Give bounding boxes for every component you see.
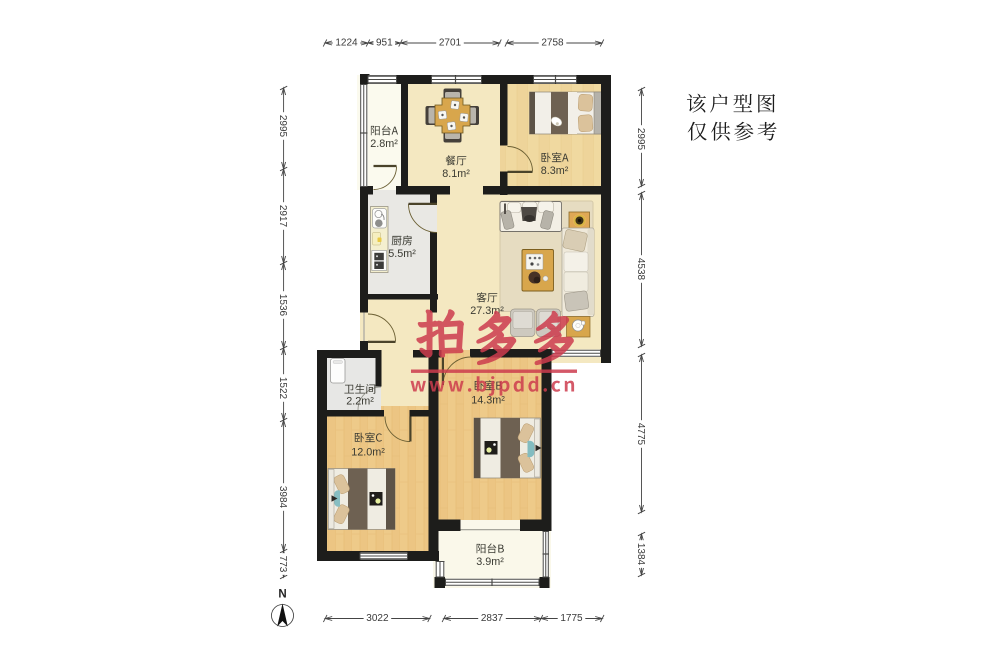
svg-text:14.3m²: 14.3m²: [471, 395, 505, 407]
svg-text:8.1m²: 8.1m²: [442, 168, 470, 180]
svg-text:2.2m²: 2.2m²: [346, 396, 374, 408]
svg-text:1536: 1536: [277, 294, 288, 317]
svg-text:951: 951: [376, 38, 393, 49]
svg-text:1522: 1522: [277, 377, 288, 400]
svg-text:773: 773: [277, 556, 288, 573]
svg-text:2701: 2701: [439, 38, 462, 49]
svg-text:3984: 3984: [277, 486, 288, 509]
svg-text:4538: 4538: [635, 258, 646, 281]
svg-text:3022: 3022: [366, 613, 389, 624]
svg-text:2995: 2995: [277, 115, 288, 138]
svg-text:4775: 4775: [635, 423, 646, 446]
svg-text:3.9m²: 3.9m²: [476, 556, 504, 568]
svg-text:2837: 2837: [481, 613, 504, 624]
svg-text:5.5m²: 5.5m²: [388, 248, 416, 260]
svg-text:1775: 1775: [560, 613, 583, 624]
svg-text:1384: 1384: [635, 543, 646, 566]
svg-text:1224: 1224: [335, 38, 358, 49]
svg-text:2995: 2995: [635, 128, 646, 151]
svg-text:2917: 2917: [277, 205, 288, 228]
svg-text:8.3m²: 8.3m²: [541, 165, 569, 177]
svg-text:2.8m²: 2.8m²: [370, 138, 398, 150]
svg-text:N: N: [278, 589, 286, 601]
svg-text:12.0m²: 12.0m²: [351, 447, 385, 459]
svg-text:2758: 2758: [541, 38, 564, 49]
